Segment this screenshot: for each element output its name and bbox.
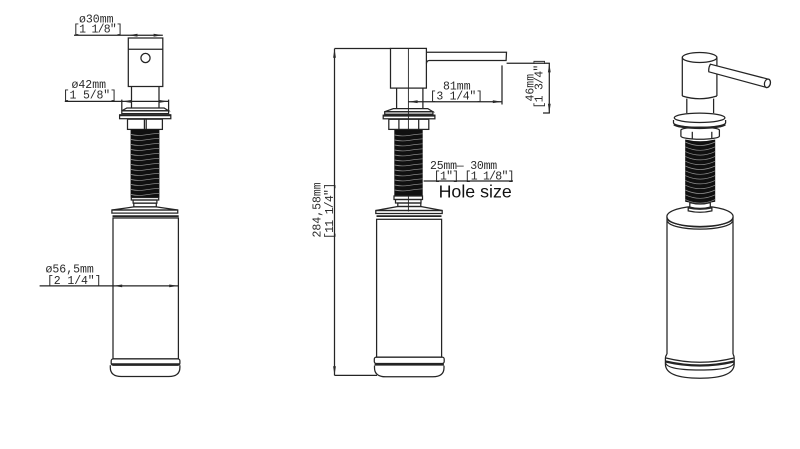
svg-text:[1 3/4″]: [1 3/4″] [533, 59, 546, 108]
svg-text:Hole size: Hole size [439, 181, 512, 201]
svg-text:284,58mm: 284,58mm [312, 182, 325, 237]
svg-text:[1 5/8″]: [1 5/8″] [63, 90, 117, 103]
